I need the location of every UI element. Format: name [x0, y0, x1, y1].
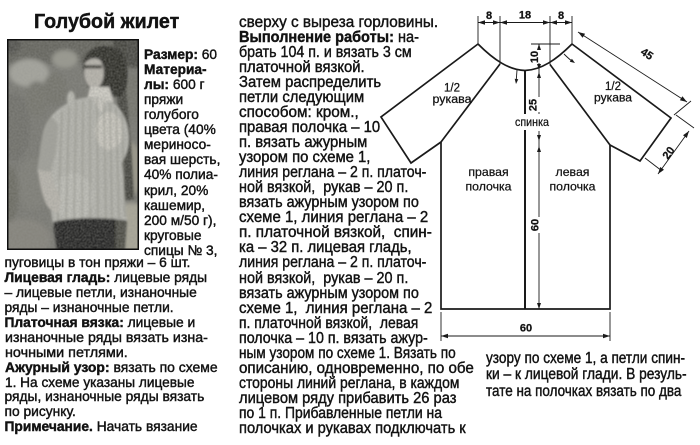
svg-text:8: 8 — [558, 10, 564, 22]
svg-text:8: 8 — [486, 10, 492, 22]
svg-text:полочка: полочка — [549, 180, 595, 194]
svg-text:10: 10 — [529, 51, 541, 63]
svg-text:60: 60 — [530, 219, 542, 231]
svg-text:25: 25 — [528, 99, 540, 111]
svg-text:18: 18 — [519, 10, 531, 22]
svg-text:20: 20 — [661, 145, 678, 162]
svg-text:1/2: 1/2 — [444, 83, 460, 95]
svg-text:60: 60 — [520, 323, 532, 335]
svg-text:45: 45 — [638, 46, 655, 63]
svg-text:левая: левая — [556, 165, 590, 179]
svg-text:рукава: рукава — [594, 93, 633, 105]
svg-text:полочка: полочка — [465, 180, 511, 194]
svg-text:спинка: спинка — [515, 115, 549, 129]
svg-text:рукава: рукава — [433, 94, 473, 106]
svg-text:правая: правая — [468, 165, 508, 179]
svg-text:1/2: 1/2 — [605, 81, 621, 93]
